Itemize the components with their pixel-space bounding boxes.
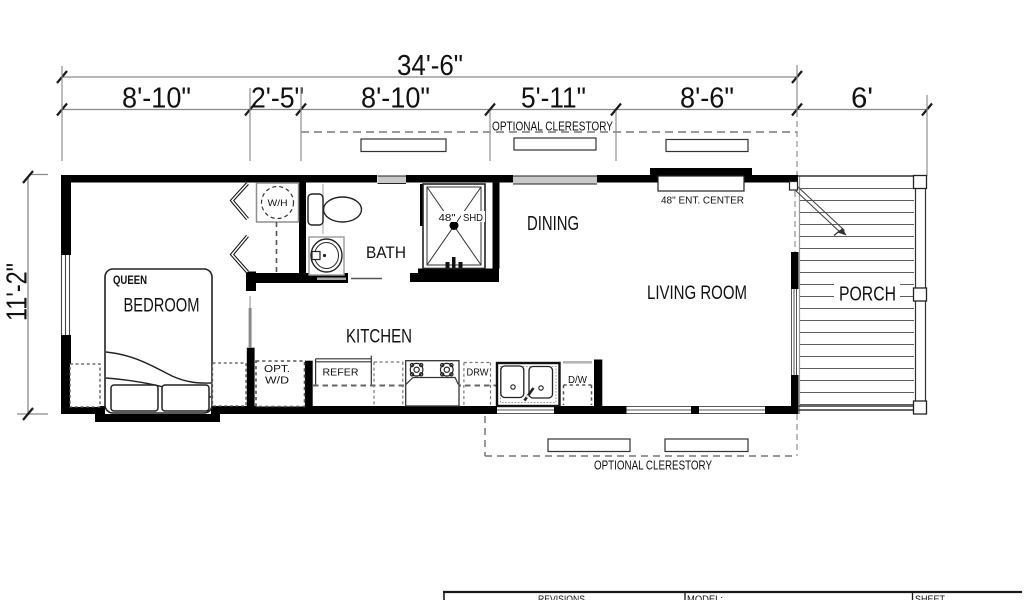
svg-text:PORCH: PORCH [839,283,896,306]
svg-text:SHEET: SHEET [915,595,945,600]
svg-text:W/D: W/D [265,376,289,387]
svg-text:LIVING ROOM: LIVING ROOM [647,282,747,304]
svg-text:BATH: BATH [366,243,406,262]
svg-text:DRW: DRW [467,368,490,379]
svg-text:MODEL:: MODEL: [687,595,723,600]
svg-text:OPTIONAL CLERESTORY: OPTIONAL CLERESTORY [492,120,614,134]
svg-text:48": 48" [439,212,456,224]
svg-text:2'-5": 2'-5" [251,83,304,115]
svg-text:SHD: SHD [463,212,483,224]
svg-text:REVISIONS: REVISIONS [538,595,585,600]
svg-text:5'-11": 5'-11" [521,83,586,115]
svg-text:OPT.: OPT. [264,364,290,375]
svg-text:6': 6' [851,83,873,115]
svg-text:8'-10": 8'-10" [122,83,191,115]
svg-text:BEDROOM: BEDROOM [124,296,200,317]
svg-text:OPTIONAL CLERESTORY: OPTIONAL CLERESTORY [594,459,713,473]
svg-text:KITCHEN: KITCHEN [346,327,412,348]
svg-text:48" ENT. CENTER: 48" ENT. CENTER [661,195,744,207]
svg-text:REFER: REFER [323,368,359,379]
svg-text:8'-10": 8'-10" [361,83,430,115]
svg-text:DINING: DINING [527,212,579,235]
svg-text:11'-2": 11'-2" [2,263,34,321]
svg-text:QUEEN: QUEEN [113,275,147,287]
svg-text:8'-6": 8'-6" [680,83,734,115]
svg-text:34'-6": 34'-6" [397,50,463,82]
svg-text:W/H: W/H [268,198,288,209]
